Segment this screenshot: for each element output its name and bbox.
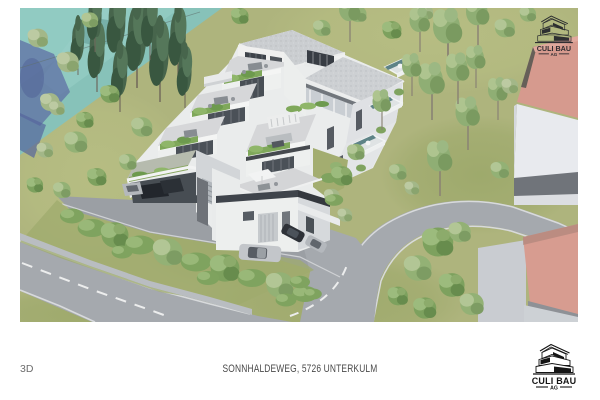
svg-text:AG: AG [551,52,558,57]
svg-text:3D: 3D [20,363,34,375]
svg-text:CULI BAU: CULI BAU [532,376,577,386]
svg-text:AG: AG [550,386,558,392]
svg-text:SONNHALDEWEG, 5726 UNTERKULM: SONNHALDEWEG, 5726 UNTERKULM [223,363,378,375]
